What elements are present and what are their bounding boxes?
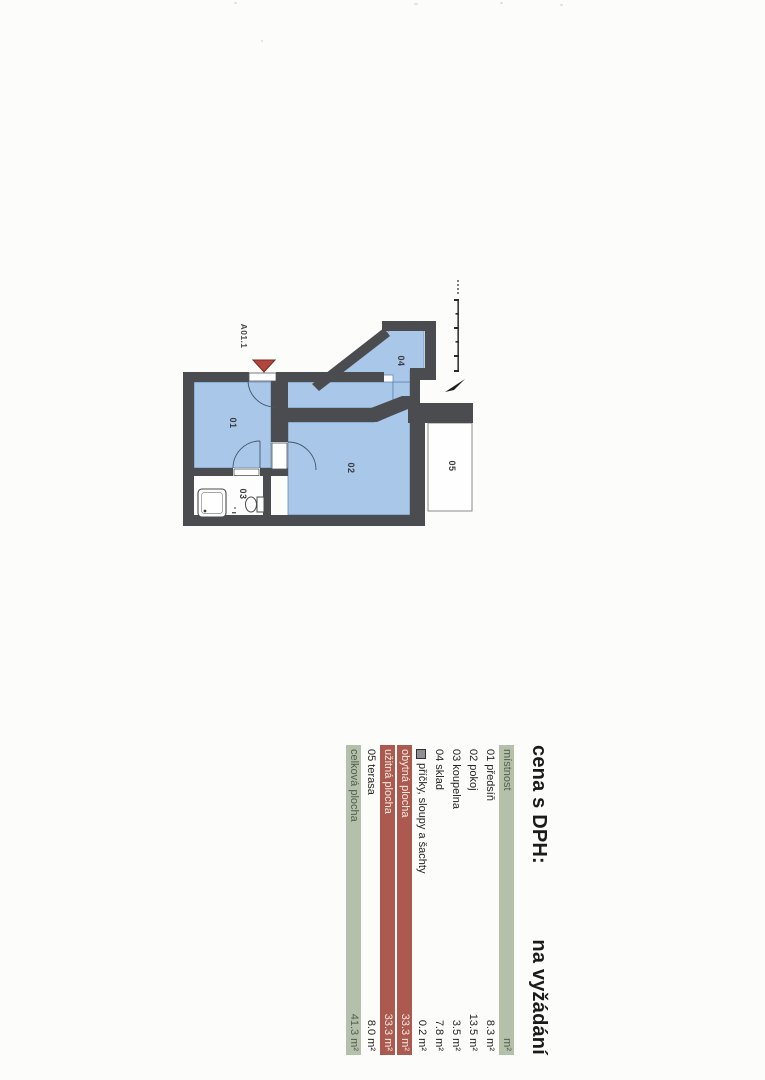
scan-speck (500, 2, 503, 4)
row-name: 05 terasa (363, 749, 378, 795)
north-arrow-icon (445, 379, 465, 392)
table-row: 02 pokoj 13.5 m² (465, 745, 480, 1055)
scan-speck (560, 4, 563, 6)
floor-plan-svg: A01.1 01 02 03 04 05 (178, 268, 480, 552)
table-row-partitions: příčky, sloupy a šachty 0.2 m² (414, 745, 429, 1055)
corridor (281, 382, 393, 408)
price-label: cena s DPH: (527, 745, 550, 864)
row-name: 02 pokoj (465, 749, 480, 791)
scale-bar-icon (454, 280, 459, 372)
row-value: 0.2 m² (414, 1020, 429, 1051)
row-value: 13.5 m² (465, 1014, 480, 1051)
room-label-05: 05 (447, 460, 457, 471)
table-row: 04 sklad 7.8 m² (431, 745, 446, 1055)
room-label-04: 04 (396, 355, 406, 366)
bathroom-door-leaf (234, 469, 259, 476)
price-headline: cena s DPH: na vyžádání (526, 745, 550, 1055)
entrance-arrow-icon (253, 360, 275, 372)
living-door-leaf (272, 443, 287, 469)
row-value: 8.0 m² (363, 1020, 378, 1051)
table-row: 03 koupelna 3.5 m² (448, 745, 463, 1055)
toilet-icon (257, 497, 264, 512)
row-name: celková plocha (346, 749, 361, 822)
row-value: 41.3 m² (346, 1014, 361, 1051)
row-value: 3.5 m² (448, 1020, 463, 1051)
row-name: 01 předsíň (482, 749, 497, 801)
table-row-living-area: obytná plocha 33.3 m² (397, 745, 412, 1055)
row-value: 8.3 m² (482, 1020, 497, 1051)
header-area: m² (499, 1038, 514, 1051)
wall-swatch-icon (417, 749, 427, 759)
legend-block: cena s DPH: na vyžádání místnost m² 01 p… (340, 745, 550, 1055)
row-name: obytná plocha (397, 749, 412, 818)
scan-speck (261, 40, 263, 42)
row-value: 7.8 m² (431, 1020, 446, 1051)
row-value: 33.3 m² (380, 1014, 395, 1051)
floor-plan: A01.1 01 02 03 04 05 (178, 268, 480, 552)
scanned-floorplan-page: { "headline": { "left": "cena s DPH:", "… (0, 0, 765, 1080)
row-value: 33.3 m² (397, 1014, 412, 1051)
area-table: místnost m² 01 předsíň 8.3 m² 02 pokoj 1… (346, 745, 514, 1055)
table-row: 01 předsíň 8.3 m² (482, 745, 497, 1055)
table-row-total-area: celková plocha 41.3 m² (346, 745, 361, 1055)
scan-speck (234, 2, 237, 4)
header-room: místnost (499, 749, 514, 791)
room-label-02: 02 (346, 462, 356, 473)
table-row: 05 terasa 8.0 m² (363, 745, 378, 1055)
entrance-door-leaf (249, 373, 276, 381)
room-label-03: 03 (238, 488, 248, 499)
row-name: příčky, sloupy a šachty (414, 749, 429, 873)
room-label-01: 01 (228, 417, 238, 428)
table-row-usable-area: užitná plocha 33.3 m² (380, 745, 395, 1055)
scan-speck (414, 3, 418, 5)
row-name: užitná plocha (380, 749, 395, 814)
row-name: 03 koupelna (448, 749, 463, 809)
unit-label: A01.1 (239, 324, 249, 349)
row-name: 04 sklad (431, 749, 446, 790)
table-header-row: místnost m² (499, 745, 514, 1055)
price-value: na vyžádání (527, 939, 550, 1055)
